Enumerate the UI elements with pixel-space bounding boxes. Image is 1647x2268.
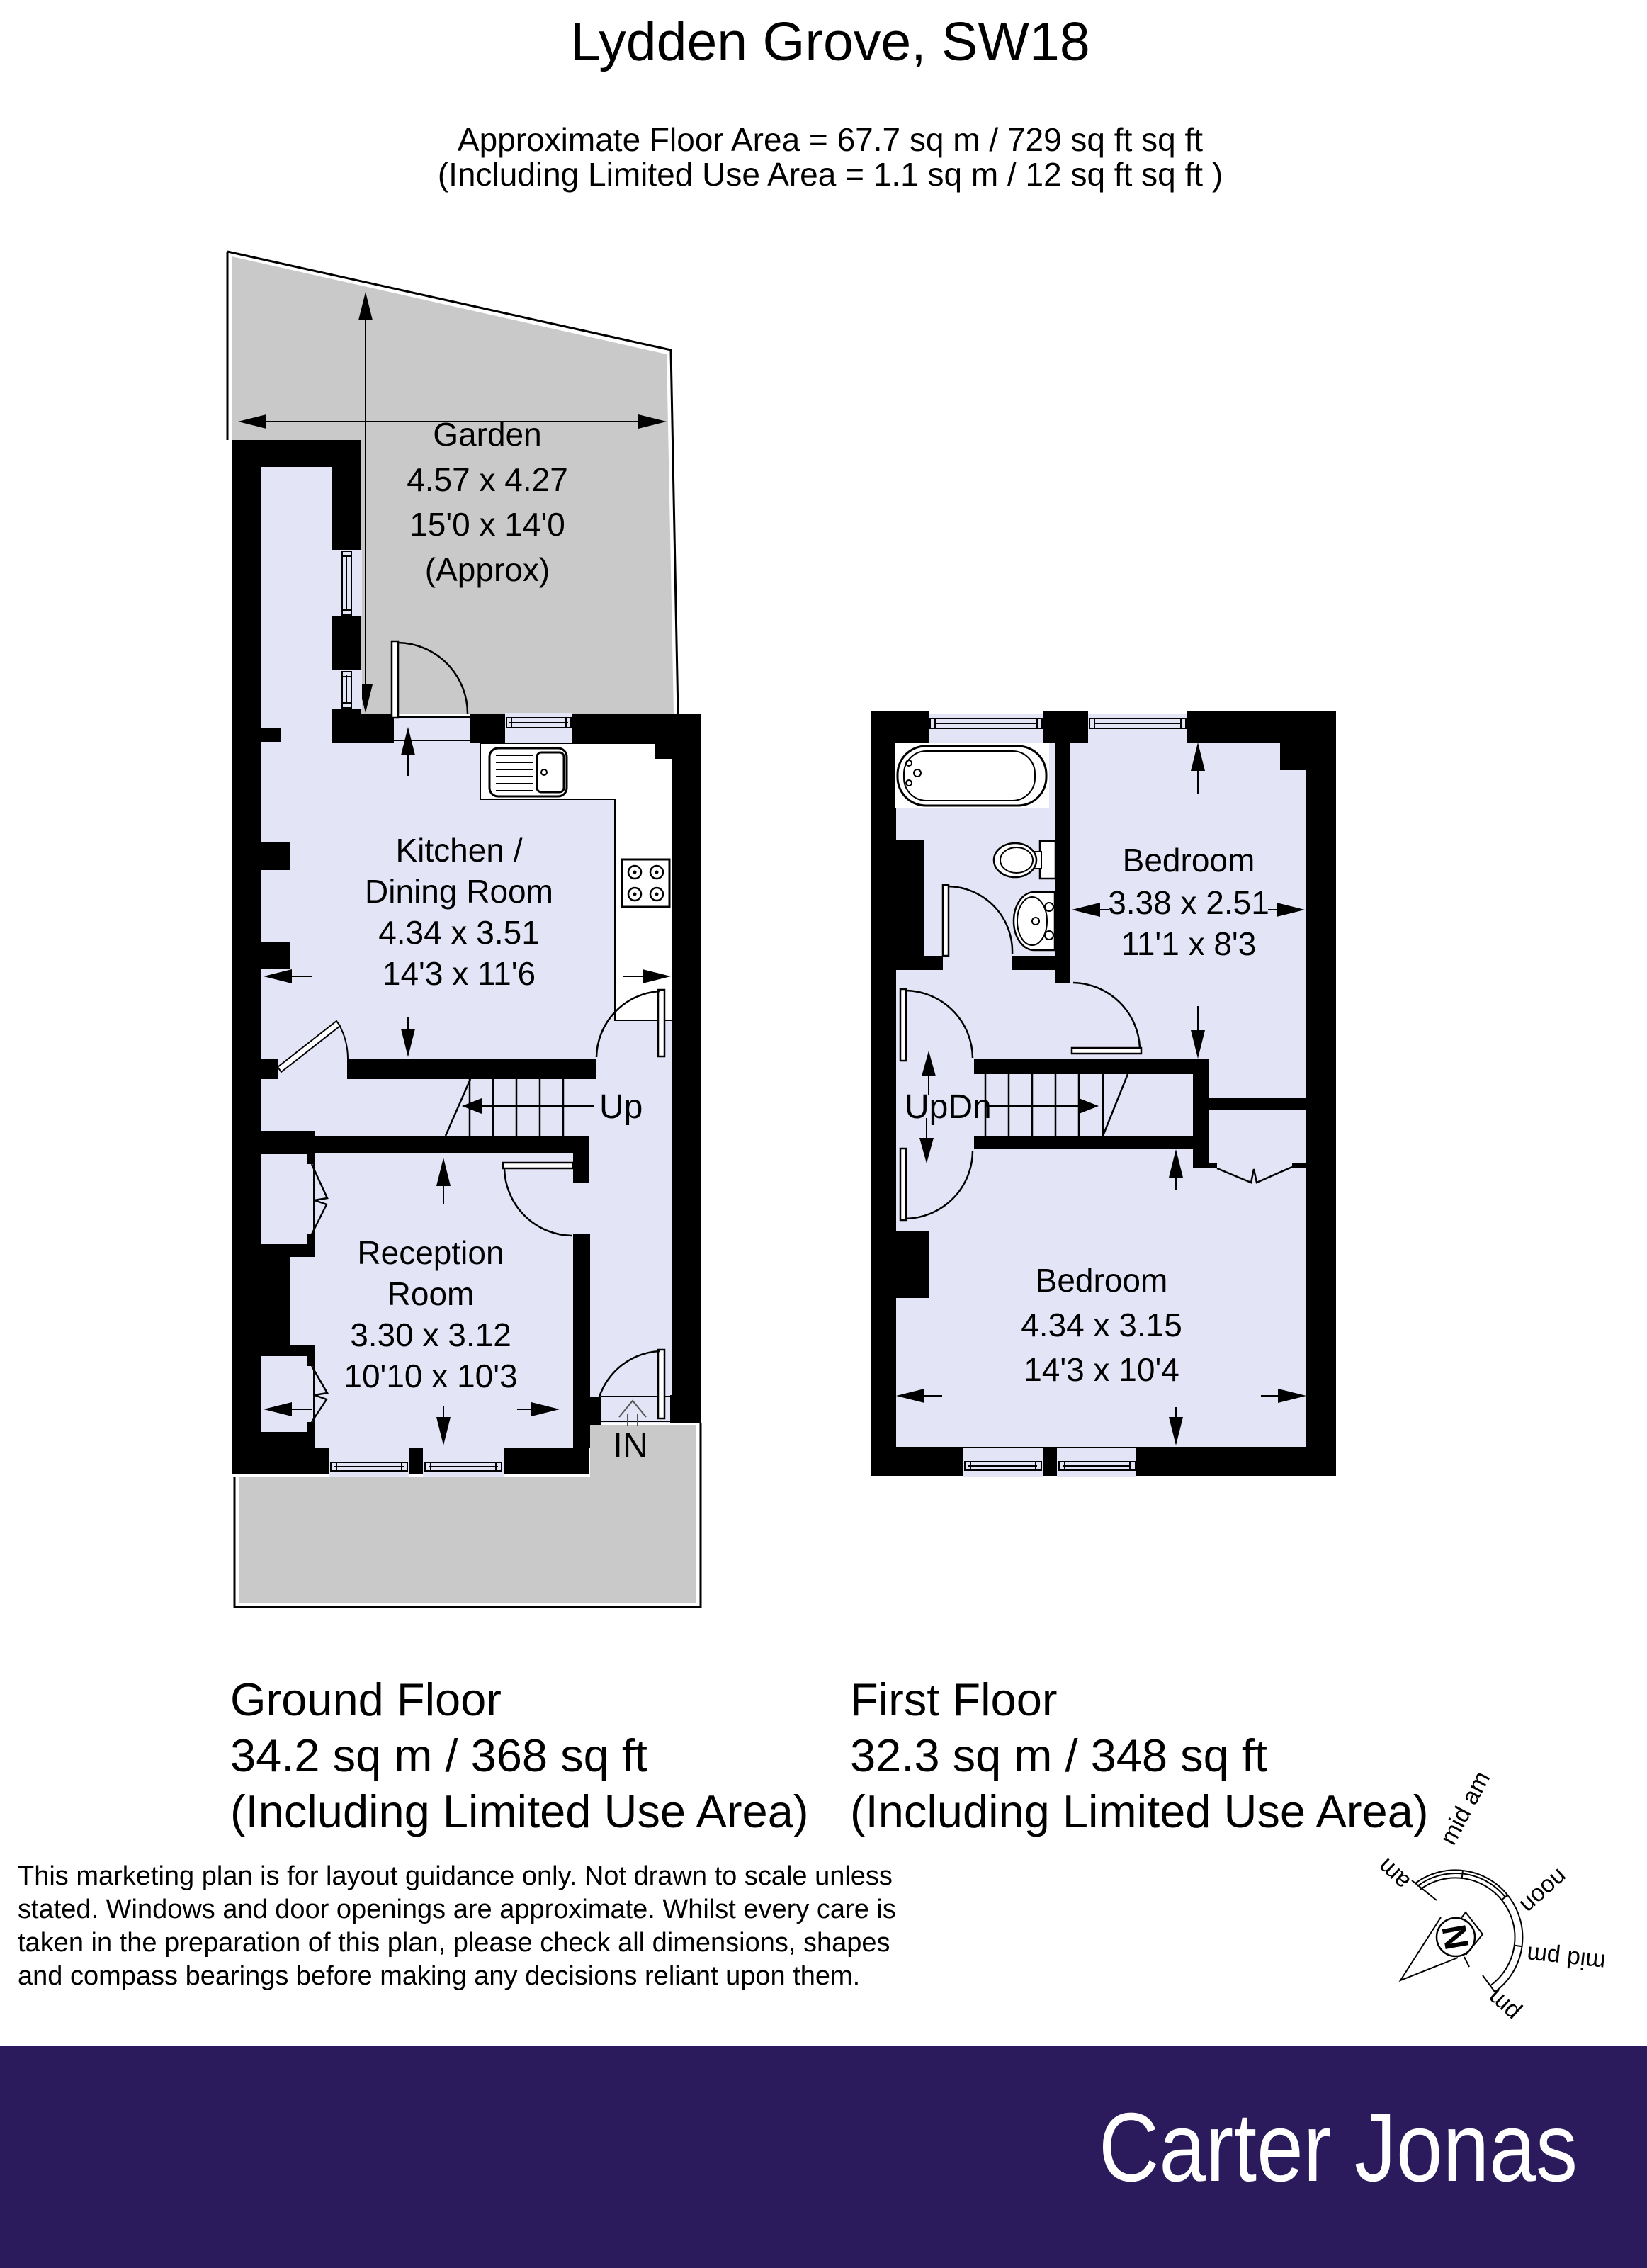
- svg-text:(Approx): (Approx): [425, 551, 550, 588]
- svg-text:Kitchen /: Kitchen /: [396, 832, 523, 869]
- svg-text:Reception: Reception: [357, 1234, 504, 1271]
- svg-text:15'0 x 14'0: 15'0 x 14'0: [409, 506, 565, 543]
- svg-text:3.30 x 3.12: 3.30 x 3.12: [350, 1316, 511, 1353]
- svg-text:Lydden Grove, SW18: Lydden Grove, SW18: [570, 11, 1089, 72]
- svg-text:Up: Up: [599, 1088, 643, 1126]
- svg-text:4.34 x 3.51: 4.34 x 3.51: [378, 914, 540, 951]
- svg-text:(Including Limited Use Area =: (Including Limited Use Area = 1.1 sq m /…: [438, 156, 1223, 193]
- svg-text:34.2 sq m / 368 sq ft: 34.2 sq m / 368 sq ft: [230, 1730, 647, 1781]
- svg-text:(Including Limited Use Area): (Including Limited Use Area): [850, 1785, 1429, 1837]
- svg-text:Room: Room: [387, 1275, 475, 1312]
- svg-text:This marketing plan is for lay: This marketing plan is for layout guidan…: [18, 1861, 893, 1891]
- svg-text:10'10 x 10'3: 10'10 x 10'3: [344, 1358, 517, 1394]
- svg-text:Bedroom: Bedroom: [1123, 842, 1255, 879]
- svg-text:Dining Room: Dining Room: [365, 873, 553, 910]
- svg-text:First Floor: First Floor: [850, 1674, 1058, 1725]
- svg-text:14'3 x 11'6: 14'3 x 11'6: [383, 955, 536, 992]
- svg-text:14'3 x 10'4: 14'3 x 10'4: [1024, 1351, 1179, 1388]
- svg-text:stated. Windows and door openi: stated. Windows and door openings are ap…: [18, 1895, 896, 1924]
- svg-text:3.38 x 2.51: 3.38 x 2.51: [1108, 884, 1269, 921]
- svg-text:4.34 x 3.15: 4.34 x 3.15: [1021, 1307, 1182, 1343]
- svg-text:(Including Limited Use Area): (Including Limited Use Area): [230, 1785, 809, 1837]
- svg-text:and compass bearings before ma: and compass bearings before making any d…: [18, 1961, 860, 1991]
- svg-text:IN: IN: [613, 1426, 648, 1465]
- svg-text:11'1 x 8'3: 11'1 x 8'3: [1121, 925, 1257, 962]
- svg-text:32.3 sq m / 348 sq ft: 32.3 sq m / 348 sq ft: [850, 1730, 1267, 1781]
- svg-text:Approximate Floor Area = 67.7: Approximate Floor Area = 67.7 sq m / 729…: [458, 121, 1203, 158]
- svg-text:Ground Floor: Ground Floor: [230, 1674, 502, 1725]
- svg-text:UpDn: UpDn: [905, 1088, 992, 1126]
- svg-text:Carter Jonas: Carter Jonas: [1099, 2093, 1578, 2202]
- svg-text:4.57 x 4.27: 4.57 x 4.27: [407, 461, 568, 498]
- svg-text:taken in the preparation of th: taken in the preparation of this plan, p…: [18, 1928, 890, 1958]
- svg-text:Bedroom: Bedroom: [1036, 1262, 1168, 1299]
